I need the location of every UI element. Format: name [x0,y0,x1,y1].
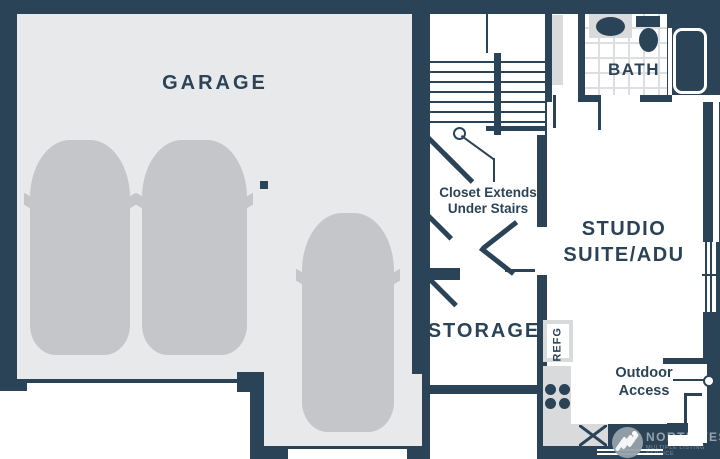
bath-label: BATH [594,60,674,80]
garage-door-pier [237,372,264,392]
stove-icon [543,382,571,412]
floor-plan: REFG GARAGE STORAGE B [0,0,720,459]
lower-hall [430,394,537,459]
watermark: NORTHWEST MULTIPLE LISTING SERVICE [612,427,720,459]
garage-post [260,181,268,189]
closet-note-line1: Closet Extends [418,185,558,201]
watermark-logo-icon [612,427,643,458]
window-right-line [710,242,712,312]
corridor-door-leaf [553,95,556,128]
studio-label-line1: STUDIO [544,216,704,242]
window-right-mullion [702,274,716,276]
bath-door-opening [601,95,640,102]
exterior-keyline-top [672,95,720,102]
stair-bottom-wall [486,126,545,131]
storage-label: STORAGE [394,320,574,343]
closet-note: Closet Extends Under Stairs [418,185,558,217]
toilet-bowl-icon [639,28,658,52]
outdoor-note-line1: Outdoor [604,364,684,382]
outdoor-note-line2: Access [604,382,684,400]
exterior-keyline-right [713,102,719,242]
utility-chase [552,15,563,85]
bath-door-leaf [598,102,601,130]
exterior-left [0,391,27,459]
sink-icon [596,17,625,36]
watermark-brand: NORTHWEST [646,430,720,444]
exterior-below-bay [288,449,407,459]
callout-line [493,158,495,182]
outdoor-door-leaf [684,396,687,424]
studio-label-line2: SUITE/ADU [544,242,704,268]
stair-treads [430,53,545,128]
car-icon [30,140,130,355]
entry-door-jamb [505,269,535,272]
stair-landing-line [486,14,488,53]
tub-icon [673,28,707,94]
stair-divider-wall [494,53,501,135]
car-icon [302,213,394,432]
window-right-line [705,242,707,312]
toilet-tank-icon [636,16,660,27]
watermark-subtitle: MULTIPLE LISTING SERVICE [646,445,720,457]
studio-label: STUDIO SUITE/ADU [544,216,704,268]
closet-note-line2: Under Stairs [418,201,558,217]
outdoor-access-note: Outdoor Access [604,364,684,400]
garage-label: GARAGE [115,72,315,95]
exterior-below-garage [27,383,250,459]
car-icon [142,140,247,355]
sink-appliance-icon [579,425,607,446]
callout-anchor-dot [703,375,715,387]
